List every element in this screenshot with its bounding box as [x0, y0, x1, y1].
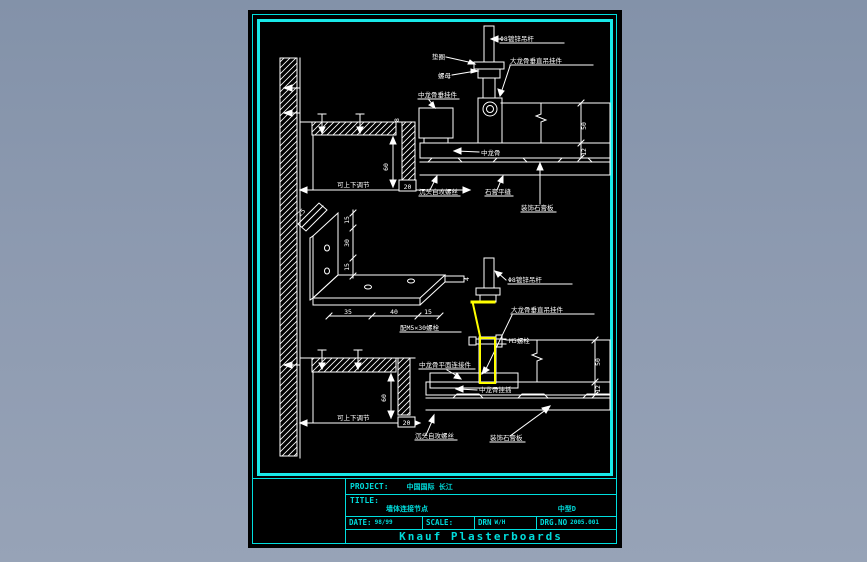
upper-label-rod: Φ8镀锌吊杆 [500, 34, 534, 43]
project-row: PROJECT: 中国国际 长江 [346, 479, 616, 494]
drgno-label: DRG.NO [540, 518, 567, 527]
date-value: 98/99 [375, 519, 393, 526]
upper-dim-20: 20 [404, 183, 412, 191]
upper-label-mid-runner: 中龙骨 [481, 148, 501, 157]
upper-dim-50: 50 [580, 122, 588, 130]
bracket-dim-40: 40 [390, 308, 398, 316]
title-label: TITLE: [350, 496, 379, 505]
project-value: 中国国际 长江 [407, 482, 453, 492]
upper-label-nut: 螺母 [438, 71, 452, 80]
bracket-dim-30: 30 [343, 239, 351, 247]
lower-dim-20: 20 [403, 419, 411, 427]
title-value: 墙体连接节点 [386, 504, 428, 514]
lower-label-adjust: 可上下调节 [337, 413, 370, 422]
lower-label-board: 装饰石膏板 [490, 433, 523, 442]
detail-drawing: Φ8镀锌吊杆 大龙骨垂直吊挂件 垫圈 螺母 中龙骨垂挂件 中龙骨 沉头自攻螺丝 … [248, 10, 622, 550]
title-block-empty-cell [253, 479, 346, 543]
scale-label: SCALE: [426, 518, 453, 527]
drn-cell: DRN W/H [475, 517, 537, 529]
bracket-detail [298, 203, 464, 332]
drgno-value: 2005.001 [570, 519, 599, 526]
drn-label: DRN [478, 518, 492, 527]
lower-dim-50: 50 [594, 358, 602, 366]
cad-viewer-canvas: Φ8镀锌吊杆 大龙骨垂直吊挂件 垫圈 螺母 中龙骨垂挂件 中龙骨 沉头自攻螺丝 … [0, 0, 867, 562]
drawing-sheet: Φ8镀锌吊杆 大龙骨垂直吊挂件 垫圈 螺母 中龙骨垂挂件 中龙骨 沉头自攻螺丝 … [248, 10, 622, 548]
title-block: PROJECT: 中国国际 长江 TITLE: 墙体连接节点 中型D DATE:… [252, 478, 617, 544]
bracket-dim-15c: 15 [424, 308, 432, 316]
title-row: TITLE: 墙体连接节点 中型D [346, 494, 616, 516]
lower-label-runner-insert: 中龙骨挂插 [479, 385, 512, 394]
wall-section [280, 58, 300, 458]
bracket-note: 配M5×30螺栓 [400, 323, 440, 332]
drn-value: W/H [495, 519, 506, 526]
bracket-dim-15b: 15 [343, 263, 351, 271]
upper-label-board: 装饰石膏板 [521, 203, 554, 212]
upper-dim-12: 12 [580, 148, 588, 156]
upper-label-screw: 沉头自攻螺丝 [419, 187, 459, 196]
upper-dim-8: 8 [393, 118, 401, 122]
title-type-code: 中型D [558, 504, 576, 514]
meta-row: DATE: 98/99 SCALE: DRN W/H DRG.NO 2005.0… [346, 516, 616, 529]
scale-cell: SCALE: [423, 517, 475, 529]
lower-dim-60: 60 [380, 394, 388, 402]
lower-label-big-hanger: 大龙骨垂直吊挂件 [511, 305, 564, 314]
upper-label-mid-hanger: 中龙骨垂挂件 [418, 90, 458, 99]
bracket-dim-35: 35 [344, 308, 352, 316]
upper-label-big-hanger: 大龙骨垂直吊挂件 [510, 56, 563, 65]
project-label: PROJECT: [350, 482, 389, 491]
date-label: DATE: [349, 518, 372, 527]
date-cell: DATE: 98/99 [346, 517, 423, 529]
bracket-dim-4: 4 [463, 277, 471, 281]
lower-label-rod: Φ8镀锌吊杆 [508, 275, 542, 284]
lower-label-screw: 沉头自攻螺丝 [415, 431, 455, 440]
lower-label-bolt: M5螺栓 [509, 336, 530, 345]
upper-dim-60: 60 [382, 163, 390, 171]
lower-dim-12: 12 [594, 385, 602, 393]
bracket-dim-15a: 15 [343, 216, 351, 224]
upper-label-washer: 垫圈 [432, 52, 445, 61]
lower-label-flat-connector: 中龙骨平面连接件 [419, 360, 472, 369]
upper-label-joint: 石膏平缝 [485, 187, 512, 196]
bracket-detail-texts: 15 30 15 35 40 15 4 25 配M5×30螺栓 [296, 207, 471, 332]
upper-label-adjust: 可上下调节 [337, 180, 370, 189]
company-row: Knauf Plasterboards [346, 529, 616, 543]
company-name: Knauf Plasterboards [399, 530, 563, 543]
drgno-cell: DRG.NO 2005.001 [537, 517, 616, 529]
